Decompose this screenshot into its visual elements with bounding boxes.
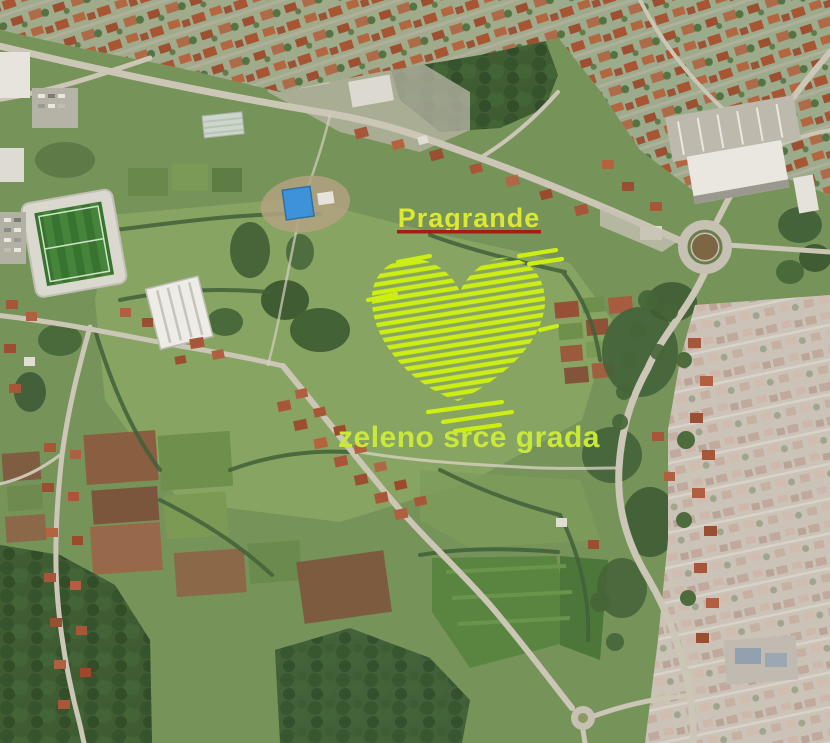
aerial-photo: Pragrande zeleno srce grada bbox=[0, 0, 830, 743]
greenhouse bbox=[202, 112, 244, 138]
label-underline bbox=[397, 230, 541, 234]
road-roundabout-south-exit bbox=[583, 730, 585, 743]
small-roundabout bbox=[571, 706, 595, 730]
place-label: Pragrande bbox=[398, 203, 541, 233]
caption-label: zeleno srce grada bbox=[338, 421, 600, 454]
aerial-map: Pragrande zeleno srce grada bbox=[0, 0, 830, 743]
roundabout bbox=[678, 220, 732, 274]
parking-lot-west bbox=[0, 212, 26, 264]
stadium bbox=[21, 189, 128, 299]
